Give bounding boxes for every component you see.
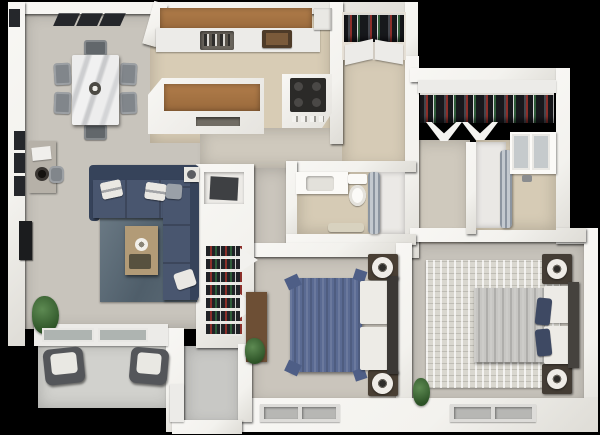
kitchen-island-wood-top (164, 84, 260, 111)
side-table-lamp (187, 170, 196, 179)
dining-chair (119, 63, 137, 86)
bath-mat (328, 223, 364, 232)
sink-dishes (204, 34, 230, 46)
bedroom2-lamp (547, 259, 567, 279)
left-wall-window (14, 153, 25, 173)
bathroom2-mirror-right (532, 134, 550, 170)
decor-tray (129, 254, 151, 269)
dining-chair (54, 92, 72, 115)
bedroom2-headboard (568, 282, 579, 368)
bedroom1-lamp (372, 257, 393, 278)
kitchen-countertop (156, 28, 320, 52)
bathroom2-faucet (522, 175, 532, 182)
toilet-tank (348, 174, 367, 184)
shoe-shelf-row (206, 298, 242, 310)
throw-pillow-gray (165, 183, 182, 199)
bathroom1-shower-curtain (368, 172, 380, 234)
left-exterior-wall (8, 2, 25, 346)
bedroom2-window-pane (495, 407, 532, 419)
bedroom2-lamp (547, 369, 567, 389)
suite-right-wall (556, 68, 570, 238)
bedroom2-accent-pillow (535, 297, 553, 325)
desk-stool (49, 166, 64, 183)
kitchen-upper-cabinets (160, 8, 312, 30)
left-wall-window (9, 9, 20, 27)
hall-closet-hanging-clothes (344, 13, 404, 42)
burner (312, 82, 321, 91)
toilet-bowl (349, 185, 366, 206)
dining-chair (84, 124, 107, 140)
entry-bottom-wall (172, 420, 242, 434)
burner (294, 98, 303, 107)
walkin-closet-bifold-door-left (426, 122, 462, 141)
bathroom2-divider-wall (466, 142, 476, 234)
console-hat (35, 167, 49, 181)
bedroom2-window-pane (454, 407, 491, 419)
bedroom2-top-wall (410, 228, 586, 242)
sliding-door-glass (98, 328, 148, 342)
shoe-shelf-row (206, 285, 242, 297)
dishwasher (196, 117, 240, 126)
bathroom1-top-wall (286, 161, 416, 172)
dining-chair (84, 40, 107, 56)
left-wall-window (14, 176, 25, 196)
burner (312, 98, 321, 107)
refrigerator (314, 8, 332, 30)
walkin-closet-hanging-clothes (420, 93, 554, 123)
bathroom1-sink-basin (306, 176, 334, 191)
bedroom2-bed-duvet (474, 288, 544, 362)
table-centerpiece (89, 82, 101, 95)
walkin-closet-shelf (418, 80, 556, 93)
patio-chair-cushion (136, 352, 162, 375)
shoe-closet-cabinet-item (209, 176, 238, 200)
dining-chair (53, 63, 71, 86)
shoe-shelf-row (206, 246, 242, 258)
patio-chair-cushion (50, 352, 78, 376)
shoe-shelf-row (206, 324, 242, 336)
bedroom1-plant (245, 338, 265, 364)
entry-step (170, 384, 184, 422)
console-laptop (31, 146, 51, 161)
floor-plan-render (0, 0, 600, 435)
burner (294, 82, 303, 91)
bedroom1-headboard (387, 276, 398, 374)
bedroom2-plant (413, 378, 430, 406)
throw-pillow (144, 182, 167, 202)
left-wall-window (14, 131, 25, 150)
bedroom1-window-pane (302, 407, 336, 419)
entry-floor (184, 346, 242, 426)
hallway-floor (342, 56, 408, 168)
decor-bowl (135, 238, 148, 251)
shoe-shelf-row (206, 259, 242, 271)
bedroom1-lamp (372, 373, 393, 394)
shoe-shelf-row (206, 272, 242, 284)
range-knobs (292, 116, 324, 122)
wall-mounted-tv (19, 221, 32, 260)
shoe-shelf-row (206, 311, 242, 323)
bedroom1-bed-duvet (290, 278, 362, 372)
walkin-closet-bifold-door-right (462, 122, 498, 141)
bedroom2-accent-pillow (535, 328, 553, 356)
dining-chair (120, 92, 138, 115)
serving-tray-inner (266, 33, 288, 45)
sliding-door-glass (42, 328, 94, 342)
bedroom1-pillow (360, 327, 388, 370)
bathroom2-mirror-left (512, 134, 530, 170)
bedroom1-pillow (360, 281, 388, 324)
bedroom1-window-pane (264, 407, 298, 419)
